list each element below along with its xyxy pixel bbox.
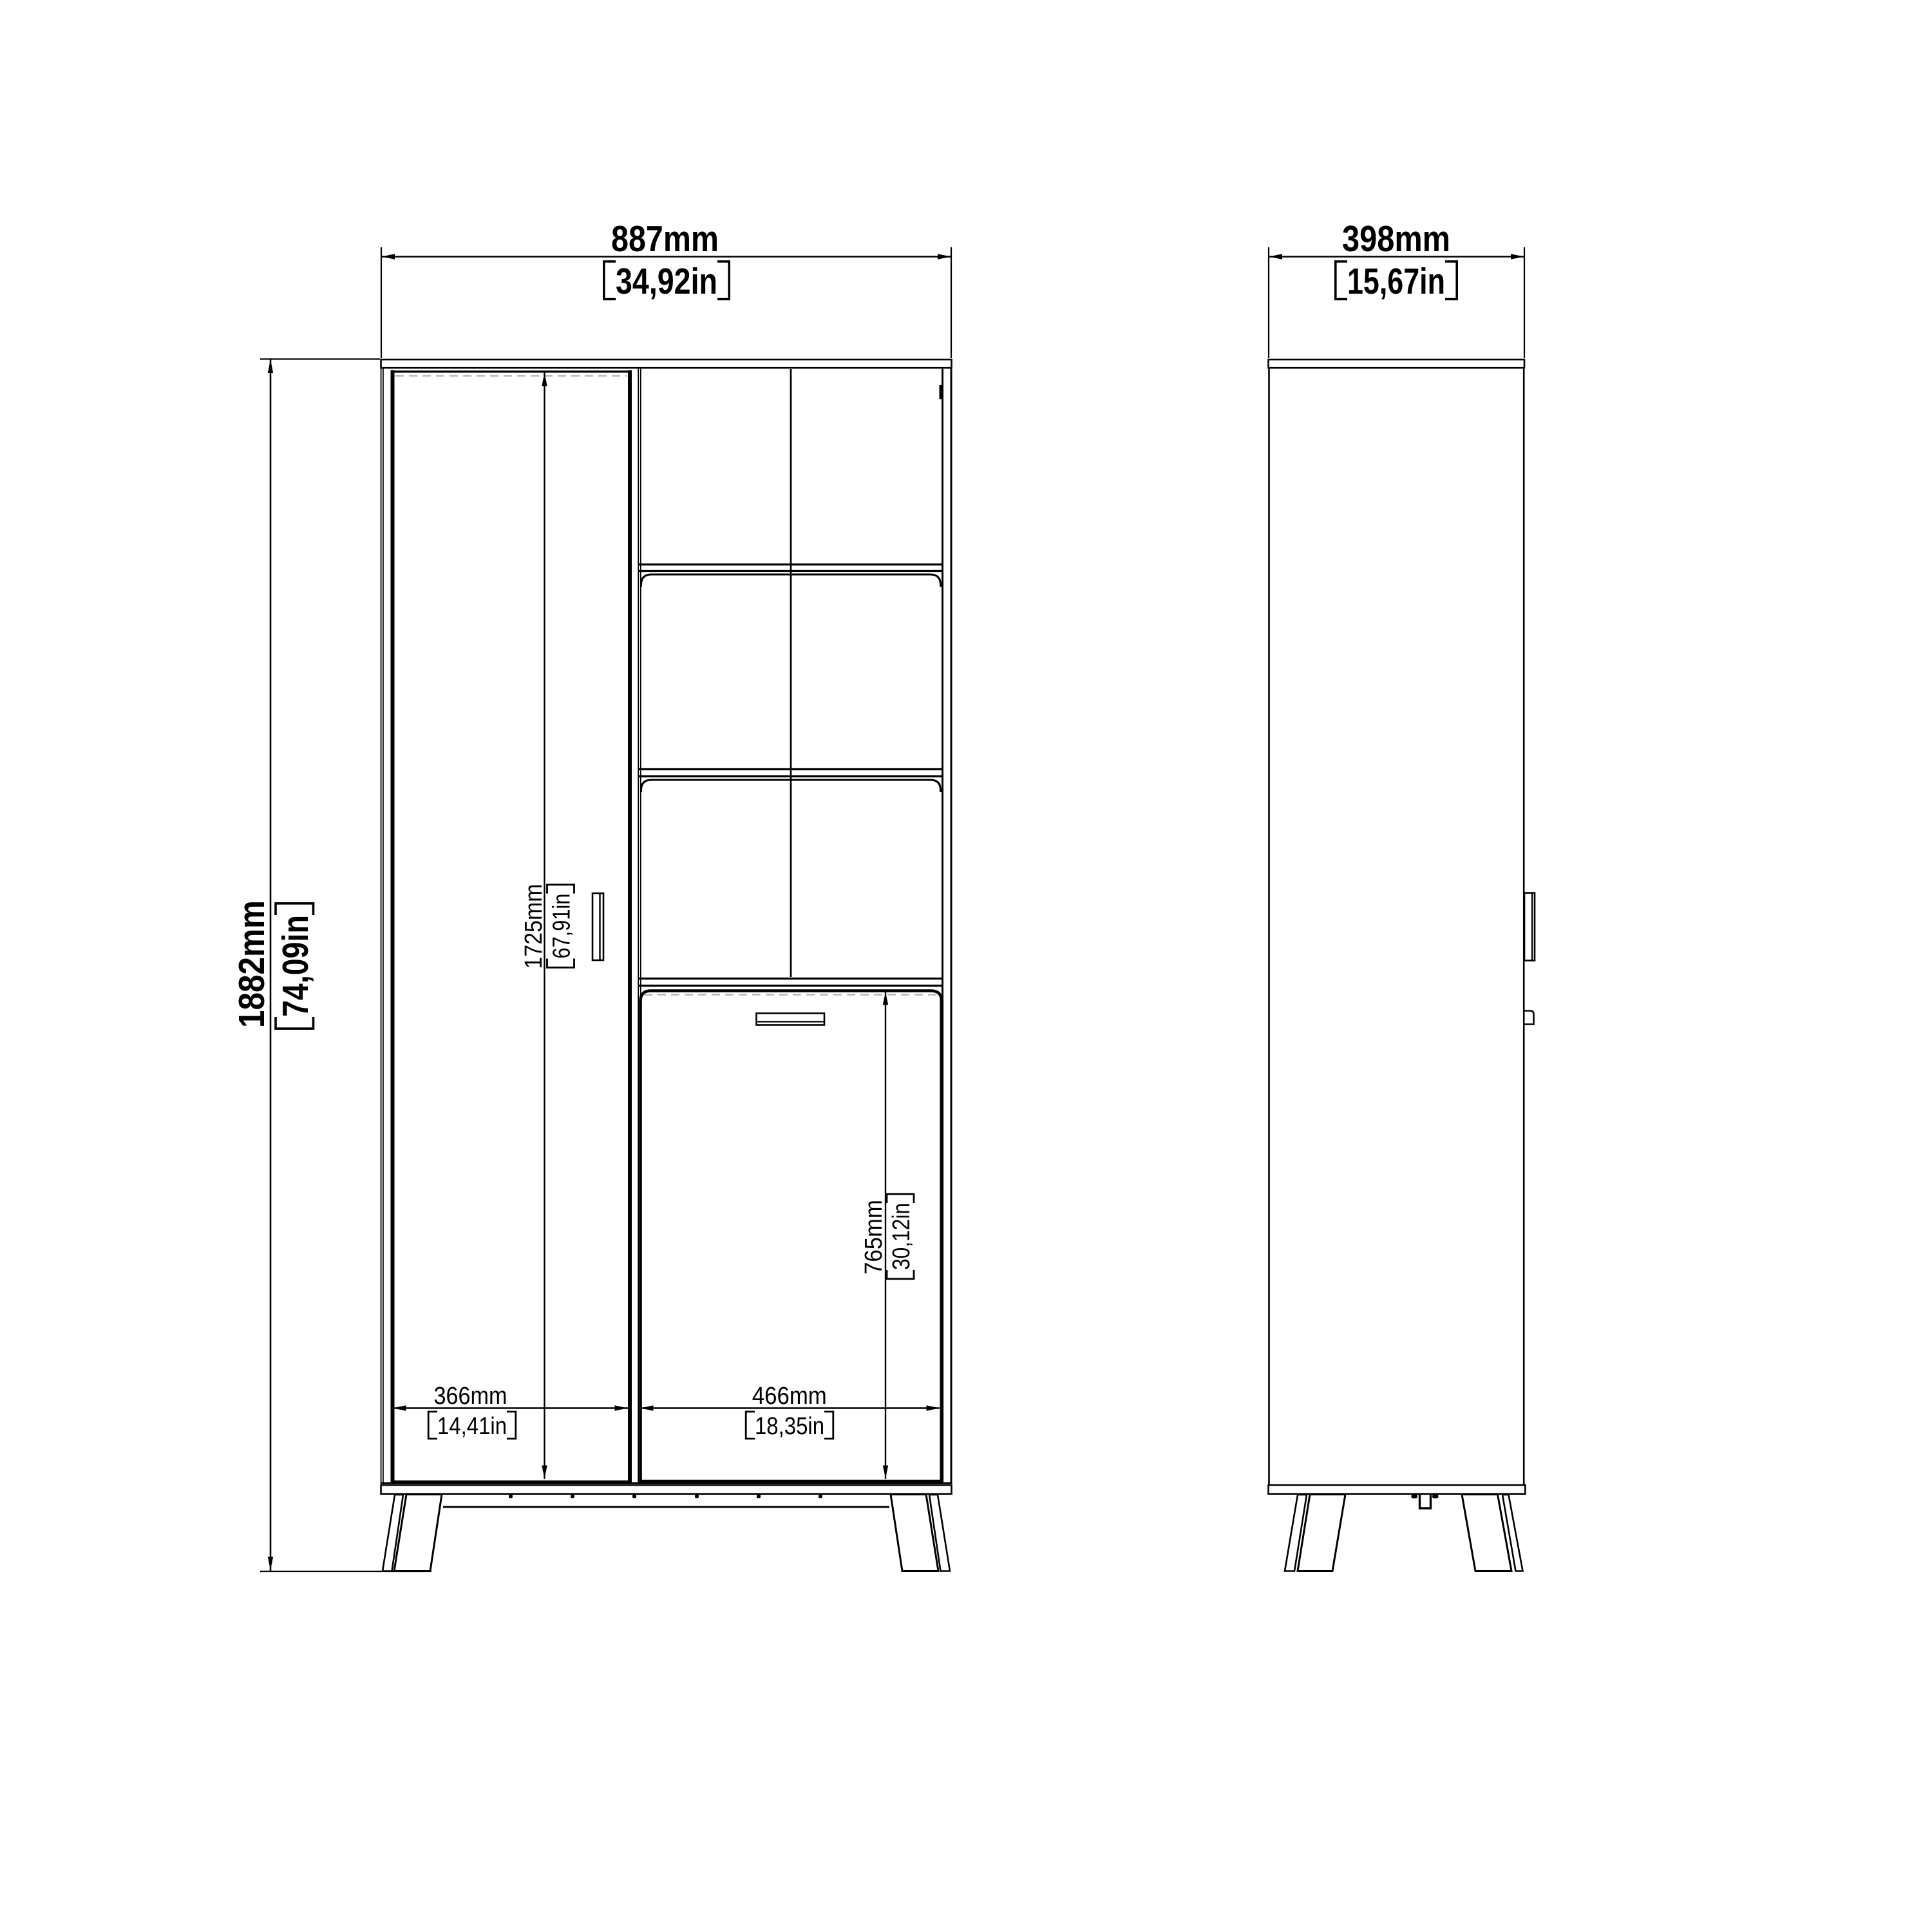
svg-text:366mm: 366mm [434, 1383, 507, 1410]
svg-text:1882mm: 1882mm [231, 900, 272, 1028]
svg-text:15,67in: 15,67in [1347, 261, 1445, 301]
svg-text:398mm: 398mm [1342, 218, 1450, 259]
svg-text:765mm: 765mm [860, 1200, 887, 1274]
svg-text:30,12in: 30,12in [888, 1203, 915, 1270]
svg-text:887mm: 887mm [611, 218, 719, 259]
svg-text:14,41in: 14,41in [437, 1413, 507, 1440]
svg-text:18,35in: 18,35in [755, 1413, 824, 1440]
svg-text:466mm: 466mm [752, 1383, 827, 1410]
svg-text:67,91in: 67,91in [549, 894, 576, 959]
svg-text:1725mm: 1725mm [520, 884, 547, 969]
svg-text:74,09in: 74,09in [275, 915, 316, 1017]
svg-text:34,92in: 34,92in [616, 261, 717, 301]
